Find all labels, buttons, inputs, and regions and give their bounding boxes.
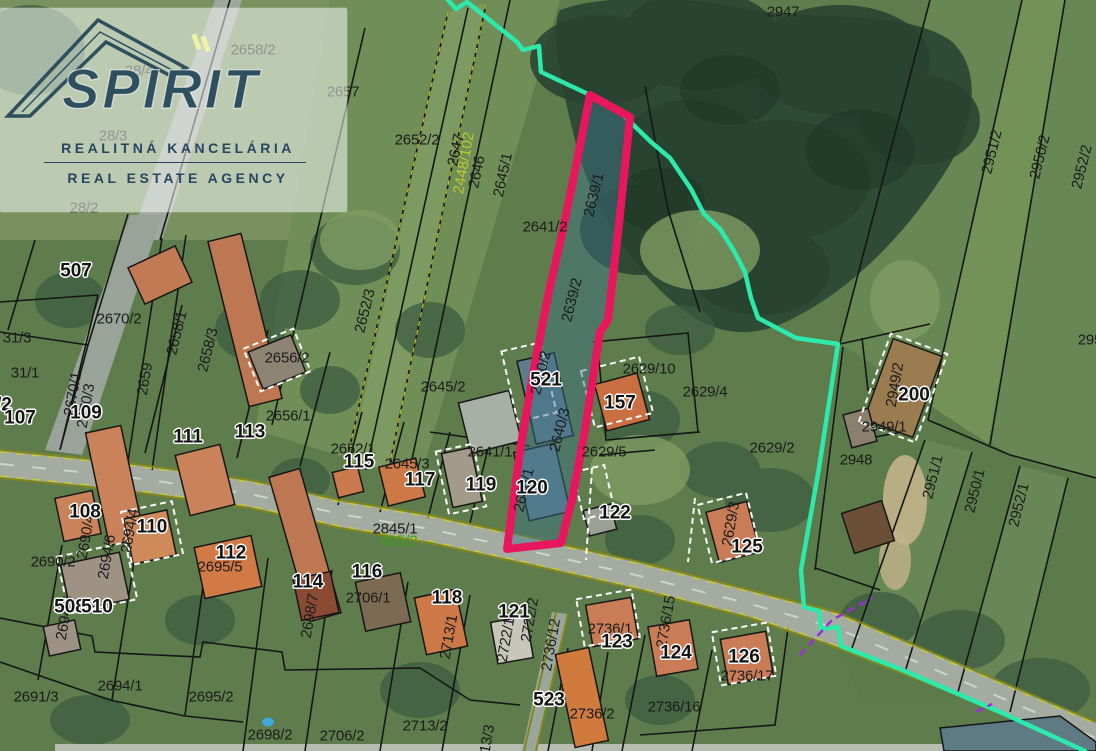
parcel-label-2706-1: 2706/1 xyxy=(346,591,391,606)
parcel-label-114: 114 xyxy=(293,573,324,592)
parcel-label-2713-2: 2713/2 xyxy=(403,719,448,734)
parcel-label-2641-2: 2641/2 xyxy=(523,220,568,235)
watermark-line2: REAL ESTATE AGENCY xyxy=(58,170,298,186)
parcel-label-2629-4: 2629/4 xyxy=(683,385,728,400)
parcel-label-2690-2: 2690/2 xyxy=(31,555,76,570)
watermark-line1: REALITNÁ KANCELÁRIA xyxy=(58,140,298,156)
parcel-label-120: 120 xyxy=(516,479,548,498)
parcel-label-523: 523 xyxy=(533,691,565,710)
parcel-label-122: 122 xyxy=(599,504,631,523)
parcel-label-123: 123 xyxy=(601,633,633,652)
parcel-label-2659: 2659 xyxy=(135,362,155,397)
parcel-label-2736-17: 2736/17 xyxy=(721,669,774,684)
map-viewport[interactable]: 29472658/2265728/428/328/22652/226472646… xyxy=(0,0,1096,751)
parcel-label-521: 521 xyxy=(530,371,562,390)
parcel-label-2645-2: 2645/2 xyxy=(421,380,466,395)
parcel-label-2698-2: 2698/2 xyxy=(248,728,293,743)
parcel-label-295: 295 xyxy=(1078,333,1096,348)
parcel-label-2736-15: 2736/15 xyxy=(654,595,678,650)
parcel-label-110: 110 xyxy=(137,518,168,537)
parcel-label-2713-1: 2713/1 xyxy=(438,614,461,661)
parcel-label-2947: 2947 xyxy=(767,5,800,20)
parcel-label-510: 510 xyxy=(81,598,113,617)
parcel-label-2656-2: 2656/2 xyxy=(265,351,310,366)
parcel-label-2949-1: 2949/1 xyxy=(862,420,907,435)
parcel-label-119: 119 xyxy=(466,476,497,495)
parcel-label-2629-10: 2629/10 xyxy=(623,362,676,377)
parcel-label-2706-2: 2706/2 xyxy=(320,729,365,744)
parcel-label-2736-2: 2736/2 xyxy=(570,707,615,722)
parcel-label-2652-3: 2652/3 xyxy=(352,288,377,335)
parcel-label-2629-5: 2629/5 xyxy=(582,445,627,460)
parcel-label-200: 200 xyxy=(898,386,930,405)
parcel-label-2641-1: 2641/1 xyxy=(468,445,513,460)
parcel-label-507: 507 xyxy=(60,262,92,281)
parcel-label-2629-2: 2629/2 xyxy=(750,441,795,456)
parcel-label-2694-6: 2694/6 xyxy=(96,534,119,581)
spirit-brand-text: SPIRIT xyxy=(62,57,262,120)
parcel-label-109: 109 xyxy=(70,404,102,423)
parcel-label-118: 118 xyxy=(432,589,463,608)
parcel-label-117: 117 xyxy=(405,471,436,490)
parcel-label-2736-16: 2736/16 xyxy=(648,700,701,715)
parcel-label-2952-1: 2952/1 xyxy=(1006,482,1031,529)
parcel-label-2670-2: 2670/2 xyxy=(97,312,142,327)
parcel-label-2695-2: 2695/2 xyxy=(189,690,234,705)
parcel-label-31-3: 31/3 xyxy=(3,331,31,346)
parcel-label-2950-2: 2950/2 xyxy=(1027,134,1052,181)
parcel-label-157: 157 xyxy=(604,394,636,413)
parcel-label-124: 124 xyxy=(660,644,692,663)
parcel-label-2658-3: 2658/3 xyxy=(195,327,220,374)
parcel-label-2645-1: 2645/1 xyxy=(491,152,515,199)
parcel-label-108: 108 xyxy=(69,503,101,522)
parcel-label-2952-2: 2952/2 xyxy=(1069,144,1094,191)
parcel-label-111: 111 xyxy=(173,428,203,447)
parcel-label-126: 126 xyxy=(728,648,760,667)
parcel-label-2736-12: 2736/12 xyxy=(539,618,563,673)
parcel-label-2652-2: 2652/2 xyxy=(395,133,440,148)
parcel-label-2658-1: 2658/1 xyxy=(164,310,189,357)
parcel-label-116: 116 xyxy=(352,563,383,582)
parcel-label-107: 107 xyxy=(4,409,36,428)
parcel-label-2950-1: 2950/1 xyxy=(962,468,987,515)
parcel-label-2713-3: 2713/3 xyxy=(475,724,498,751)
parcel-label-2656-1: 2656/1 xyxy=(266,409,311,424)
parcel-label-2694-1: 2694/1 xyxy=(98,679,143,694)
parcel-label-2722-1: 2722/1 xyxy=(495,617,518,664)
parcel-label-112: 112 xyxy=(216,544,247,563)
watermark-divider xyxy=(44,162,306,163)
parcel-label-2948: 2948 xyxy=(840,453,873,468)
parcel-label-2951-2: 2951/2 xyxy=(979,129,1004,176)
parcel-label-121: 121 xyxy=(498,603,530,622)
parcel-label-2639-1: 2639/1 xyxy=(581,172,606,219)
parcel-label-115: 115 xyxy=(344,453,375,472)
parcel-label-2640-3: 2640/3 xyxy=(547,407,572,454)
agency-watermark: SPIRIT REALITNÁ KANCELÁRIA REAL ESTATE A… xyxy=(0,8,347,212)
parcel-label-2951-1: 2951/1 xyxy=(920,454,945,501)
parcel-label-2698-7: 2698/7 xyxy=(299,593,322,640)
parcel-label-125: 125 xyxy=(731,538,763,557)
parcel-label-31-1: 31/1 xyxy=(11,366,39,381)
parcel-label-113: 113 xyxy=(235,423,266,442)
parcel-label-405-2: 405/2 xyxy=(380,534,418,549)
parcel-label-2639-2: 2639/2 xyxy=(559,277,584,324)
parcel-label-2691-3: 2691/3 xyxy=(14,690,59,705)
spirit-logo-icon: SPIRIT xyxy=(0,8,310,126)
